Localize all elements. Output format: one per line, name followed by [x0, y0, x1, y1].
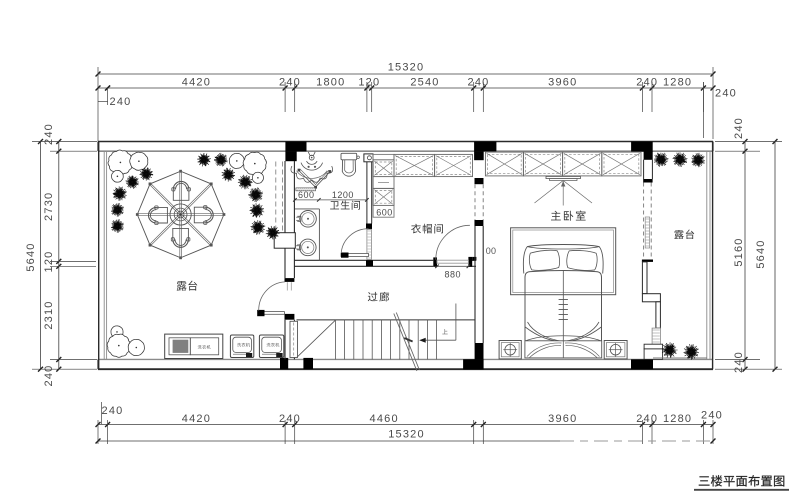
svg-text:4420: 4420	[182, 76, 211, 88]
svg-text:240: 240	[468, 76, 490, 88]
svg-text:4460: 4460	[370, 413, 399, 425]
svg-text:2540: 2540	[410, 76, 439, 88]
svg-text:120: 120	[43, 251, 55, 273]
svg-text:240: 240	[279, 76, 301, 88]
svg-text:3960: 3960	[548, 413, 577, 425]
svg-text:240: 240	[701, 410, 723, 422]
svg-text:1200: 1200	[332, 190, 354, 200]
svg-text:5640: 5640	[25, 242, 37, 271]
svg-text:240: 240	[733, 351, 745, 373]
svg-text:2310: 2310	[43, 300, 55, 329]
svg-text:240: 240	[636, 413, 658, 425]
svg-text:15320: 15320	[388, 429, 425, 441]
svg-text:240: 240	[733, 117, 745, 139]
svg-text:240: 240	[43, 123, 55, 145]
svg-text:1280: 1280	[663, 76, 692, 88]
svg-text:600: 600	[376, 207, 393, 217]
svg-text:240: 240	[102, 405, 124, 417]
svg-text:00: 00	[486, 246, 497, 256]
svg-text:2730: 2730	[43, 192, 55, 221]
svg-text:1280: 1280	[663, 413, 692, 425]
svg-text:240: 240	[715, 88, 737, 100]
svg-text:5640: 5640	[755, 239, 767, 268]
svg-text:240: 240	[110, 96, 132, 108]
svg-text:120: 120	[358, 76, 380, 88]
svg-text:880: 880	[445, 269, 462, 279]
svg-text:3960: 3960	[548, 76, 577, 88]
svg-text:240: 240	[43, 365, 55, 387]
svg-text:1800: 1800	[316, 76, 345, 88]
svg-text:15320: 15320	[388, 62, 425, 74]
svg-text:240: 240	[279, 413, 301, 425]
svg-text:240: 240	[636, 76, 658, 88]
svg-text:4420: 4420	[182, 413, 211, 425]
svg-text:600: 600	[298, 190, 315, 200]
svg-text:5160: 5160	[733, 237, 745, 266]
